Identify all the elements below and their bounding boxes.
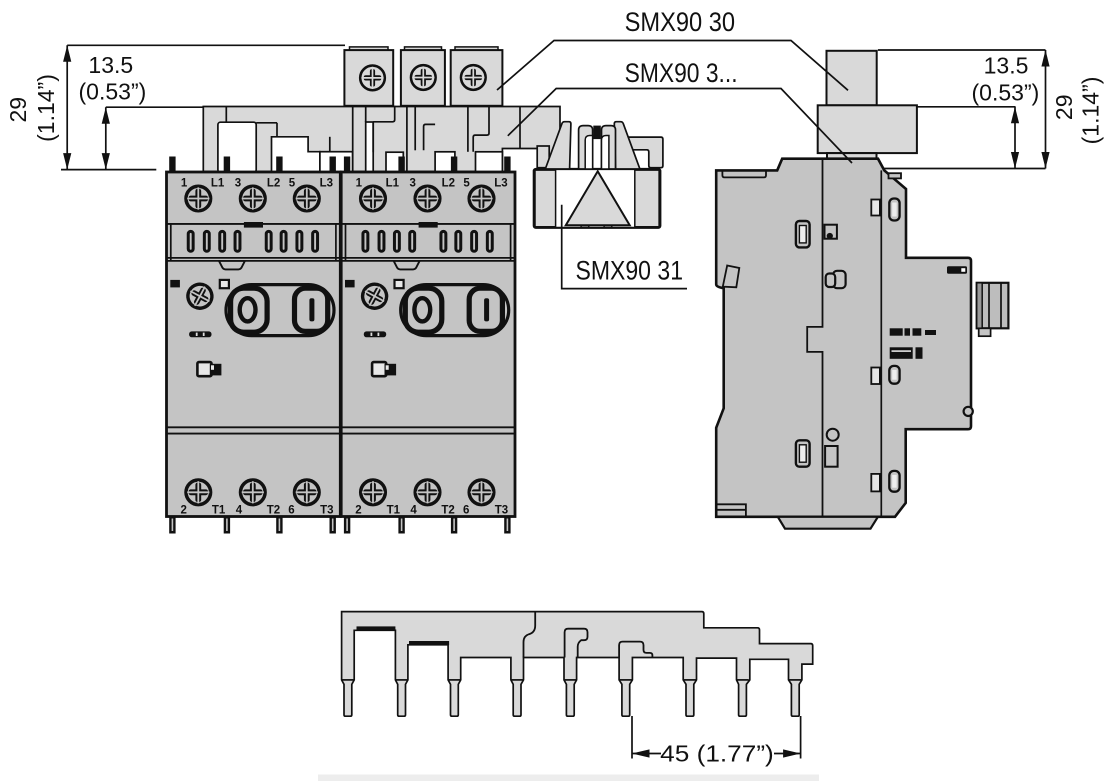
svg-text:SMX90 31: SMX90 31 bbox=[576, 256, 684, 286]
svg-text:L2: L2 bbox=[442, 177, 455, 189]
svg-text:(0.53”): (0.53”) bbox=[972, 80, 1040, 106]
svg-text:(1.14”): (1.14”) bbox=[1078, 77, 1104, 145]
svg-text:T3: T3 bbox=[495, 505, 508, 517]
svg-text:L1: L1 bbox=[386, 177, 400, 189]
svg-text:2: 2 bbox=[180, 505, 186, 517]
svg-text:L1: L1 bbox=[211, 177, 225, 189]
svg-text:13.5: 13.5 bbox=[88, 52, 133, 78]
svg-text:(1.14”): (1.14”) bbox=[33, 74, 59, 142]
svg-text:5: 5 bbox=[463, 177, 470, 189]
svg-text:T3: T3 bbox=[320, 505, 333, 517]
svg-text:4: 4 bbox=[410, 505, 417, 517]
svg-text:6: 6 bbox=[463, 505, 469, 517]
svg-text:29: 29 bbox=[5, 97, 31, 123]
svg-text:L3: L3 bbox=[320, 177, 333, 189]
svg-text:T1: T1 bbox=[387, 505, 401, 517]
svg-text:L2: L2 bbox=[267, 177, 280, 189]
svg-text:29: 29 bbox=[1051, 95, 1077, 121]
svg-text:3: 3 bbox=[409, 177, 415, 189]
svg-text:6: 6 bbox=[288, 505, 294, 517]
svg-text:4: 4 bbox=[236, 505, 243, 517]
svg-text:SMX90 3...: SMX90 3... bbox=[625, 58, 738, 88]
svg-text:T1: T1 bbox=[212, 505, 226, 517]
svg-text:45 (1.77”): 45 (1.77”) bbox=[660, 741, 774, 767]
svg-text:1: 1 bbox=[181, 177, 188, 189]
svg-text:1: 1 bbox=[356, 177, 363, 189]
svg-text:SMX90 30: SMX90 30 bbox=[625, 7, 736, 37]
svg-text:T2: T2 bbox=[267, 505, 280, 517]
svg-text:(0.53”): (0.53”) bbox=[79, 79, 147, 105]
svg-text:2: 2 bbox=[355, 505, 361, 517]
svg-text:T2: T2 bbox=[441, 505, 454, 517]
svg-text:13.5: 13.5 bbox=[984, 53, 1029, 79]
svg-text:3: 3 bbox=[235, 177, 241, 189]
svg-text:L3: L3 bbox=[494, 177, 507, 189]
svg-text:5: 5 bbox=[289, 177, 296, 189]
